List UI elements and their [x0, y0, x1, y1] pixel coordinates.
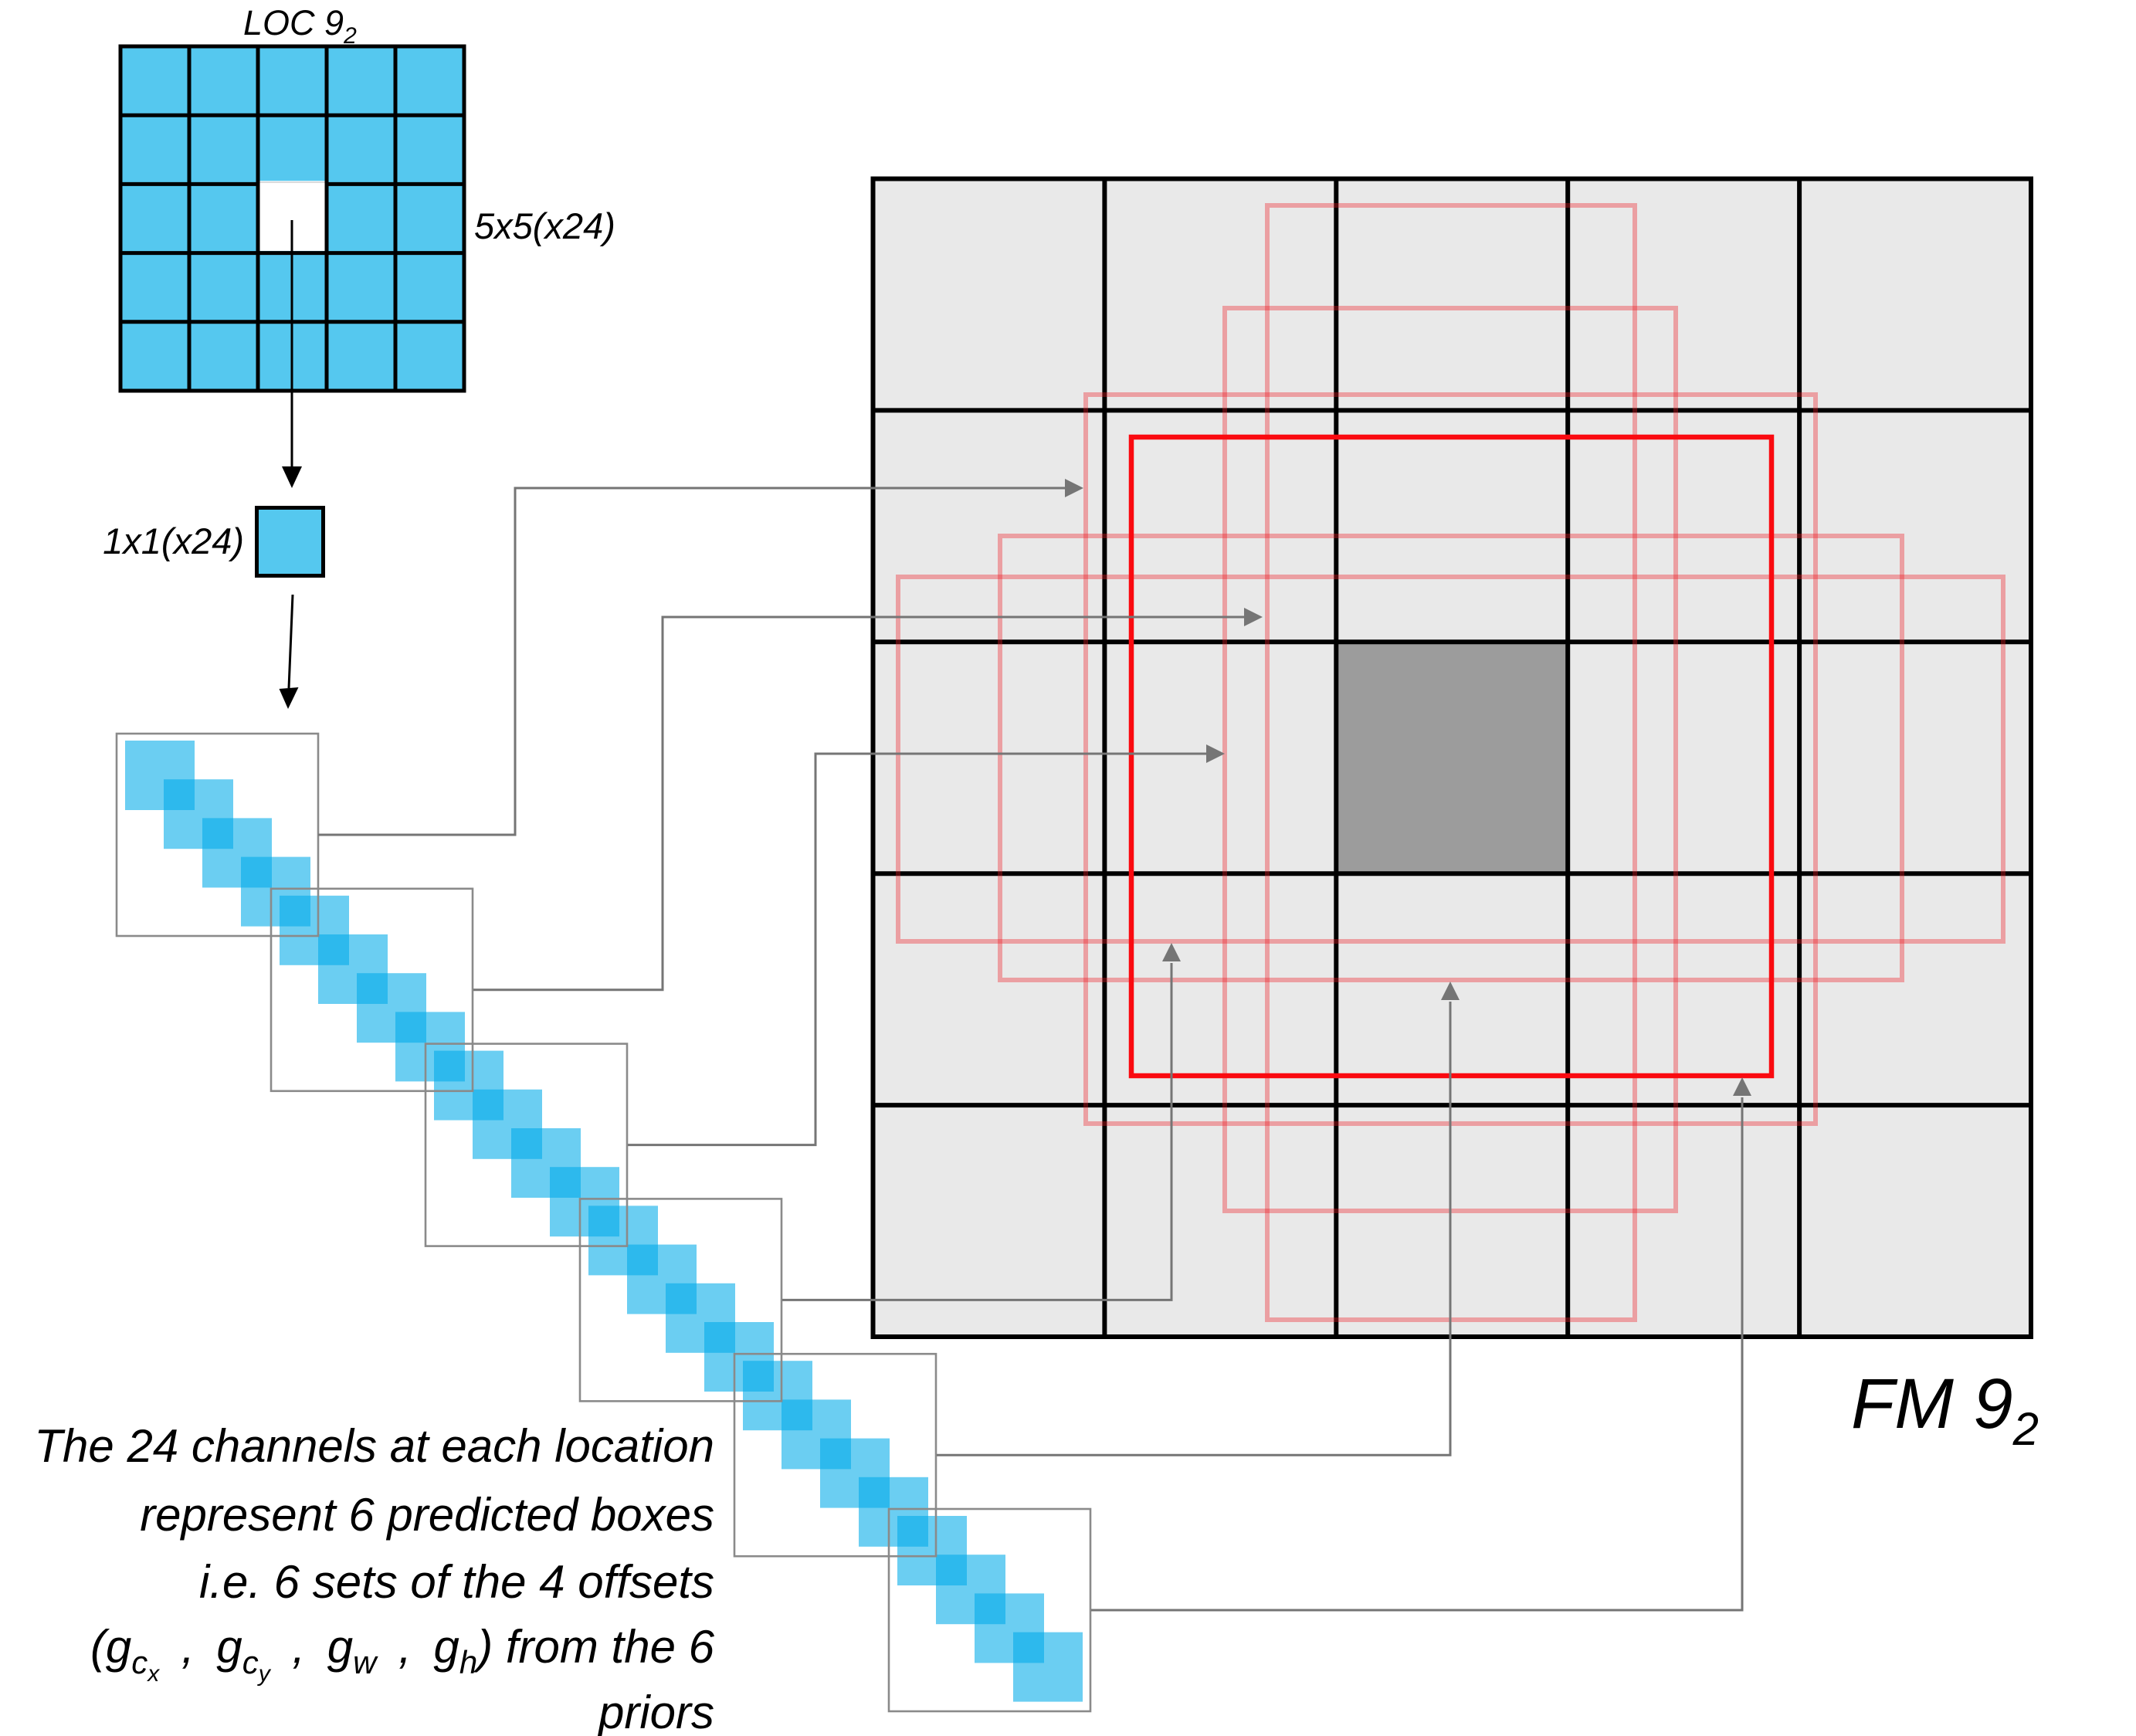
svg-text:represent 6 predicted boxes: represent 6 predicted boxes [140, 1489, 714, 1541]
svg-text:(gcx , gcy , gw , gh) fr: (gcx , gcy , gw , gh) from the 6 [90, 1621, 715, 1687]
svg-text:priors: priors [597, 1687, 714, 1736]
svg-text:FM 92: FM 92 [1851, 1365, 2039, 1455]
svg-text:i.e. 6 sets of the 4 offsets: i.e. 6 sets of the 4 offsets [199, 1556, 714, 1608]
svg-text:1x1(x24): 1x1(x24) [103, 520, 244, 561]
svg-text:The 24 channels at each locati: The 24 channels at each location [34, 1420, 714, 1472]
svg-text:5x5(x24): 5x5(x24) [474, 205, 615, 246]
svg-text:LOC 92: LOC 92 [243, 3, 357, 49]
